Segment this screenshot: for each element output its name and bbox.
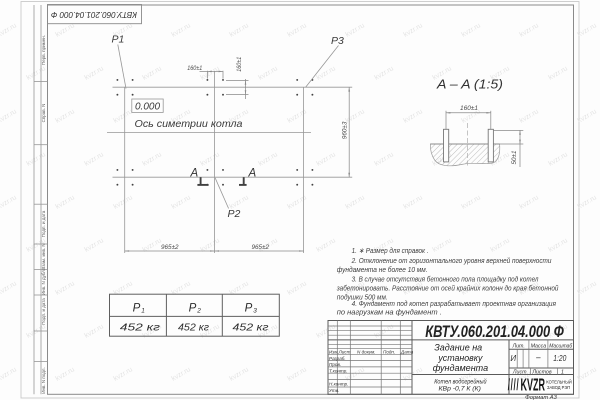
svg-text:Подп. и дата: Подп. и дата xyxy=(41,210,46,237)
svg-text:ЗАВОД РЭП: ЗАВОД РЭП xyxy=(547,385,570,390)
svg-text:Разраб.: Разраб. xyxy=(329,356,346,361)
svg-text:Изм.: Изм. xyxy=(329,349,339,354)
svg-text:забетонировать. Расстояние от: забетонировать. Расстояние от осей крайн… xyxy=(336,284,558,293)
svg-text:452 кг: 452 кг xyxy=(233,322,269,334)
svg-text:kvzr.ru: kvzr.ru xyxy=(0,194,18,210)
svg-text:1: 1 xyxy=(561,370,564,376)
svg-text:kvzr.ru: kvzr.ru xyxy=(577,366,598,382)
svg-text:Подп.: Подп. xyxy=(383,349,395,354)
svg-text:A: A xyxy=(190,168,199,180)
svg-text:3: 3 xyxy=(253,308,257,315)
svg-text:kvzr.ru: kvzr.ru xyxy=(0,22,18,38)
svg-text:–: – xyxy=(535,353,541,362)
svg-text:kvzr.ru: kvzr.ru xyxy=(577,280,598,296)
svg-text:Взам. инв. N: Взам. инв. N xyxy=(41,243,46,269)
svg-text:965±2: 965±2 xyxy=(161,244,179,251)
svg-text:Перв. примен.: Перв. примен. xyxy=(41,35,46,65)
svg-text:452 кг: 452 кг xyxy=(178,322,209,334)
svg-text:kvzr.ru: kvzr.ru xyxy=(0,366,18,382)
svg-text:1. ∗ Размер для справок .: 1. ∗ Размер для справок . xyxy=(352,246,429,255)
svg-text:Подп. и дата: Подп. и дата xyxy=(41,298,46,325)
svg-text:P2: P2 xyxy=(228,208,241,220)
svg-text:по нагрузкам на фундамент .: по нагрузкам на фундамент . xyxy=(337,308,442,317)
svg-text:Т.контр.: Т.контр. xyxy=(329,368,348,373)
svg-text:Справ. N: Справ. N xyxy=(41,104,46,123)
svg-text:P3: P3 xyxy=(331,35,344,47)
svg-text:4. Фундамент под котел разраб: 4. Фундамент под котел разрабатывает про… xyxy=(352,299,556,308)
svg-text:Инв. N подл.: Инв. N подл. xyxy=(41,367,46,393)
svg-text:1:20: 1:20 xyxy=(553,354,566,363)
svg-text:P1: P1 xyxy=(112,33,125,45)
svg-text:kvzr.ru: kvzr.ru xyxy=(577,22,598,38)
svg-text:Лит.: Лит. xyxy=(511,343,524,349)
svg-text:КВТУ.060.201.04.000 Ф: КВТУ.060.201.04.000 Ф xyxy=(425,323,564,341)
svg-text:Инв. N дубл.: Инв. N дубл. xyxy=(41,269,46,295)
svg-text:N докум.: N докум. xyxy=(357,349,376,354)
svg-text:КВТУ.060.201.04.000 Ф: КВТУ.060.201.04.000 Ф xyxy=(51,10,137,20)
svg-text:160±1: 160±1 xyxy=(236,57,243,72)
svg-text:Ось симетрии котла: Ось симетрии котла xyxy=(135,118,243,130)
svg-text:Масса: Масса xyxy=(531,343,547,349)
svg-text:2: 2 xyxy=(196,308,201,315)
svg-text:KVZR: KVZR xyxy=(520,374,545,394)
svg-text:452 кг: 452 кг xyxy=(120,322,160,334)
svg-text:Пров.: Пров. xyxy=(329,362,341,367)
svg-text:фундамента не более 10 мм.: фундамента не более 10 мм. xyxy=(337,265,428,274)
svg-text:2. Отклонение от горизонтальн: 2. Отклонение от горизонтального уровня … xyxy=(351,256,552,265)
svg-text:kvzr.ru: kvzr.ru xyxy=(0,108,18,124)
svg-text:960±3: 960±3 xyxy=(341,121,348,139)
svg-text:P: P xyxy=(133,303,141,315)
svg-text:965±2: 965±2 xyxy=(252,244,270,251)
svg-text:И: И xyxy=(510,354,516,363)
svg-text:50±1: 50±1 xyxy=(511,151,518,165)
svg-text:фундамента: фундамента xyxy=(433,363,488,374)
svg-text:Масштаб: Масштаб xyxy=(549,343,573,349)
svg-text:kvzr.ru: kvzr.ru xyxy=(0,280,18,296)
svg-text:kvzr.ru: kvzr.ru xyxy=(577,194,598,210)
svg-text:Котел водогрейный: Котел водогрейный xyxy=(434,377,487,385)
svg-text:Формат А3: Формат А3 xyxy=(525,395,557,400)
svg-text:P: P xyxy=(245,303,253,315)
svg-text:Дата: Дата xyxy=(400,349,414,354)
svg-text:160±1: 160±1 xyxy=(460,105,478,112)
svg-text:Утв.: Утв. xyxy=(329,388,339,393)
svg-text:P: P xyxy=(189,303,197,315)
svg-text:A – A (1:5): A – A (1:5) xyxy=(436,78,503,92)
svg-text:0.000: 0.000 xyxy=(135,102,160,113)
svg-text:КОТЕЛЬНЫЙ: КОТЕЛЬНЫЙ xyxy=(546,380,572,385)
svg-text:КВр -0,7 К (К): КВр -0,7 К (К) xyxy=(439,386,481,393)
svg-text:kvzr.ru: kvzr.ru xyxy=(577,108,598,124)
svg-text:3. В случае отсутствия бетонн: 3. В случае отсутствия бетонного пола пл… xyxy=(352,274,540,283)
svg-text:1: 1 xyxy=(141,308,145,315)
svg-text:160±1: 160±1 xyxy=(187,65,202,72)
svg-text:Лист: Лист xyxy=(338,349,351,354)
svg-text:Н.контр.: Н.контр. xyxy=(329,381,348,386)
svg-text:A: A xyxy=(248,168,257,180)
